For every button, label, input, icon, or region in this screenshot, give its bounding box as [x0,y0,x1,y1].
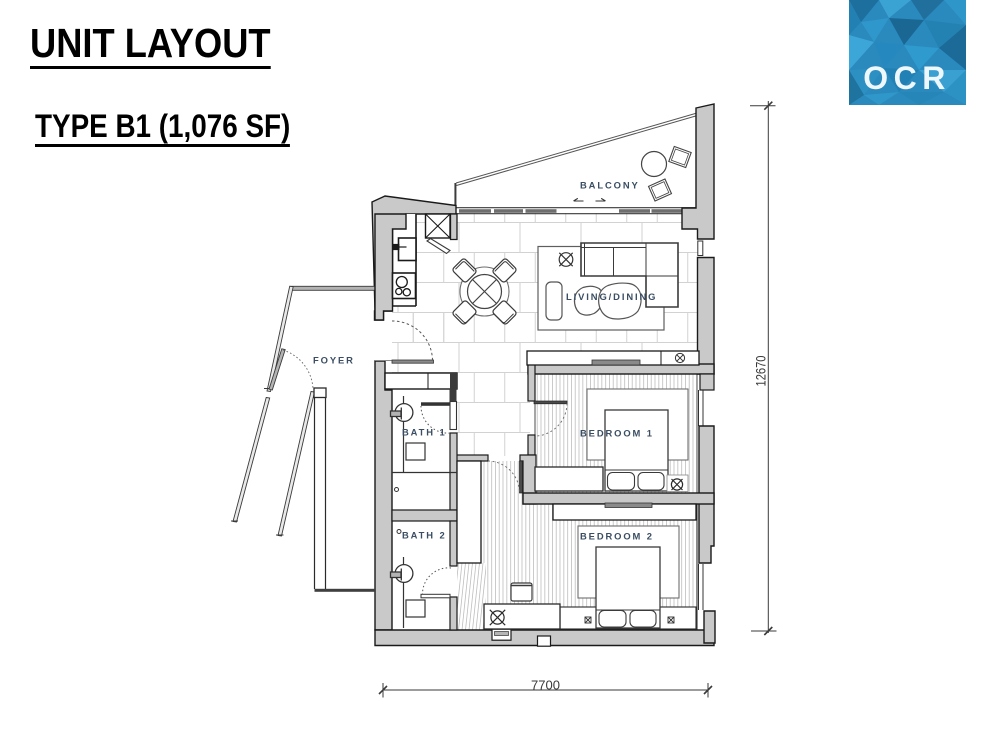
svg-text:BATH 1: BATH 1 [402,427,447,438]
svg-text:BEDROOM 2: BEDROOM 2 [580,531,654,542]
svg-text:LIVING/DINING: LIVING/DINING [566,291,657,302]
svg-text:BEDROOM 1: BEDROOM 1 [580,428,654,439]
svg-text:BALCONY: BALCONY [580,180,640,191]
svg-text:7700: 7700 [531,678,560,693]
svg-text:12670: 12670 [753,355,769,386]
svg-text:FOYER: FOYER [313,355,355,366]
svg-text:BATH 2: BATH 2 [402,530,447,541]
